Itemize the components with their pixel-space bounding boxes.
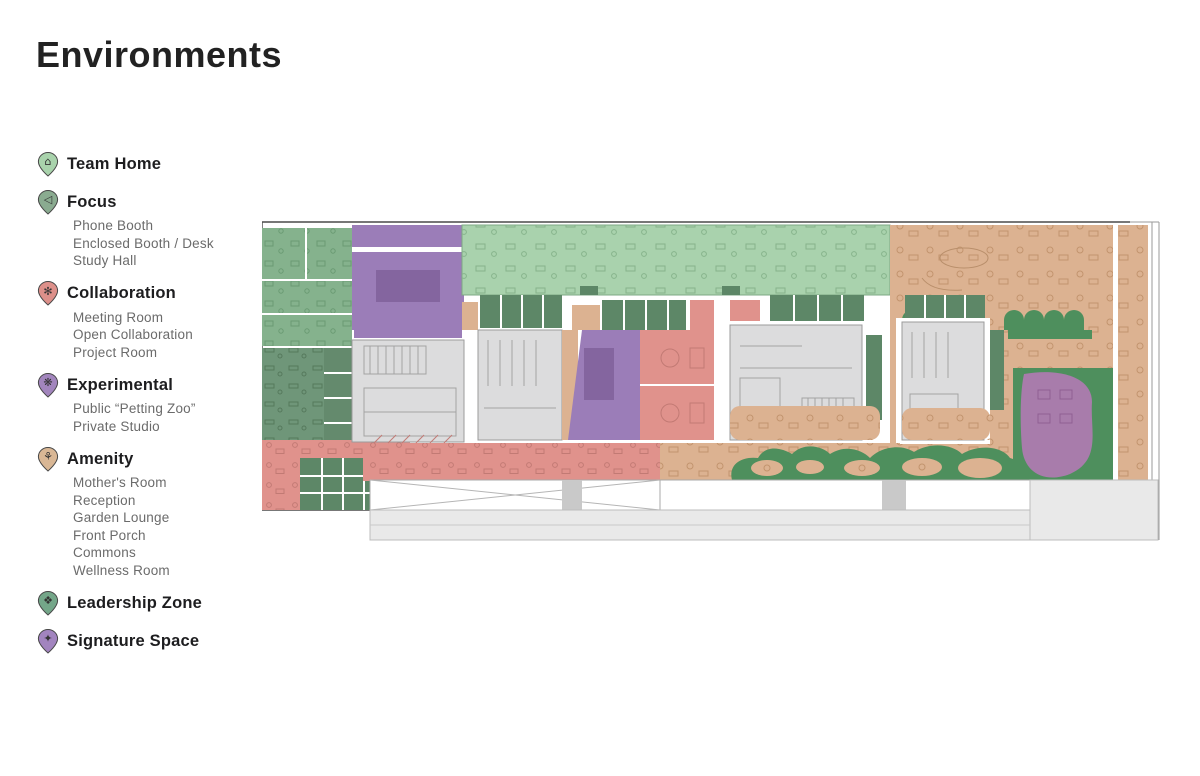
environment-legend: ⌂ Team Home ◁ Focus Phone Booth Enclosed… (36, 150, 286, 665)
legend-item-collaboration: ✻ Collaboration Meeting Room Open Collab… (36, 280, 286, 362)
legend-item-experimental: ❋ Experimental Public “Petting Zoo” Priv… (36, 371, 286, 435)
zone-team-home-offices (262, 228, 352, 346)
legend-item-leadership-zone: ❖ Leadership Zone (36, 589, 286, 617)
legend-sub-item: Project Room (73, 344, 286, 362)
legend-sub-item: Front Porch (73, 527, 286, 545)
page-title: Environments (36, 34, 282, 76)
experiment-glyph-icon: ❋ (36, 374, 60, 392)
home-glyph-icon: ⌂ (36, 153, 60, 171)
zone-petting-zoo (352, 225, 464, 338)
collaboration-pin-icon: ✻ (36, 280, 60, 307)
plant-glyph-icon: ⚘ (36, 448, 60, 466)
legend-label: Collaboration (67, 284, 176, 303)
signature-pin-icon: ✦ (36, 628, 60, 655)
zone-open-office (462, 225, 890, 295)
zone-amenity-aprons (568, 404, 990, 440)
leadership-pin-icon: ❖ (36, 590, 60, 617)
focus-pin-icon: ◁ (36, 189, 60, 216)
slide: Environments ⌂ Team Home ◁ Focus (0, 0, 1200, 776)
legend-label: Focus (67, 193, 117, 212)
cluster-glyph-icon: ✻ (36, 282, 60, 300)
amenity-pin-icon: ⚘ (36, 446, 60, 473)
legend-sub-item: Reception (73, 492, 286, 510)
legend-sub-item: Commons (73, 544, 286, 562)
legend-sub-item: Mother's Room (73, 474, 286, 492)
network-glyph-icon: ❖ (36, 592, 60, 610)
building-core-2 (478, 330, 578, 440)
legend-item-amenity: ⚘ Amenity Mother's Room Reception Garden… (36, 445, 286, 579)
legend-label: Amenity (67, 450, 134, 469)
floor-plan (262, 218, 1162, 552)
zone-study-hall (262, 348, 352, 448)
legend-sub-item: Enclosed Booth / Desk (73, 235, 286, 253)
legend-sub-item: Open Collaboration (73, 326, 286, 344)
legend-sub-item: Meeting Room (73, 309, 286, 327)
experimental-pin-icon: ❋ (36, 372, 60, 399)
atrium-skylight (370, 480, 1030, 510)
legend-sub-item: Garden Lounge (73, 509, 286, 527)
legend-sub-item: Study Hall (73, 252, 286, 270)
legend-label: Team Home (67, 155, 161, 174)
legend-sub-item: Phone Booth (73, 217, 286, 235)
legend-sub-item: Wellness Room (73, 562, 286, 580)
legend-label: Signature Space (67, 632, 199, 651)
building-core-1 (352, 340, 464, 442)
legend-sub-item: Public “Petting Zoo” (73, 400, 286, 418)
legend-item-team-home: ⌂ Team Home (36, 150, 286, 178)
legend-label: Leadership Zone (67, 594, 202, 613)
zone-front-porch-terrace (1118, 225, 1148, 480)
legend-item-signature-space: ✦ Signature Space (36, 627, 286, 655)
legend-sub-item: Private Studio (73, 418, 286, 436)
legend-item-focus: ◁ Focus Phone Booth Enclosed Booth / Des… (36, 188, 286, 270)
legend-label: Experimental (67, 376, 173, 395)
sparkle-glyph-icon: ✦ (36, 630, 60, 648)
mute-glyph-icon: ◁ (36, 191, 60, 209)
team-home-pin-icon: ⌂ (36, 151, 60, 178)
zone-signature-space (1013, 368, 1113, 480)
